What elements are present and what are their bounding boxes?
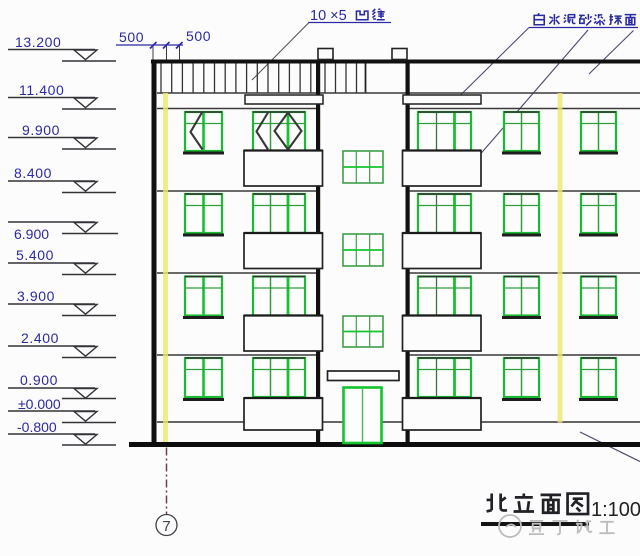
svg-text:6.900: 6.900 — [14, 226, 49, 242]
svg-text:9.900: 9.900 — [22, 122, 60, 138]
svg-text:±0.000: ±0.000 — [18, 396, 61, 412]
svg-text:1:100: 1:100 — [591, 499, 640, 521]
svg-text:10 ×5: 10 ×5 — [310, 8, 347, 24]
svg-text:8.400: 8.400 — [14, 165, 52, 181]
svg-text:7: 7 — [162, 518, 170, 535]
svg-text:5.400: 5.400 — [16, 247, 54, 263]
svg-text:0.900: 0.900 — [20, 372, 58, 388]
svg-text:500: 500 — [186, 28, 211, 44]
svg-text:2.400: 2.400 — [21, 330, 59, 346]
svg-text:13.200: 13.200 — [15, 34, 61, 50]
svg-text:3.900: 3.900 — [17, 288, 55, 304]
svg-text:500: 500 — [119, 29, 144, 45]
svg-text:11.400: 11.400 — [19, 82, 64, 98]
svg-text:-0.800: -0.800 — [17, 419, 57, 435]
